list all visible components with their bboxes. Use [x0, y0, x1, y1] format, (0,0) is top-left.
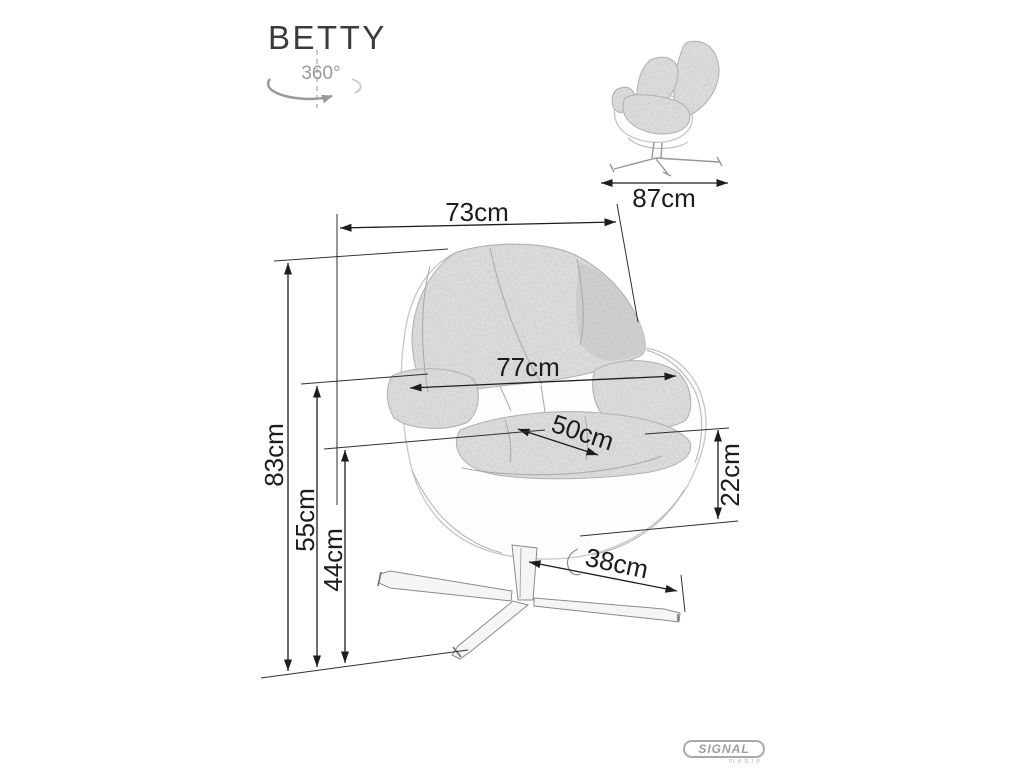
main-chair-drawing	[378, 244, 706, 659]
brand-logo: SIGNAL meble	[683, 740, 765, 765]
depth-label: 87cm	[632, 183, 696, 213]
side-base	[610, 142, 722, 176]
seat-height-label: 44cm	[318, 528, 348, 592]
product-dimension-sheet: BETTY 360°	[0, 0, 1024, 783]
dimension-depth: 87cm	[601, 183, 728, 213]
rotation-360-icon: 360°	[268, 50, 361, 108]
inner-width-label: 77cm	[496, 352, 560, 382]
rotation-label: 360°	[301, 63, 340, 84]
ext-base-leg-right	[681, 575, 685, 612]
dimension-diagram: 360°	[0, 0, 1024, 783]
base-leg-label: 38cm	[583, 542, 651, 585]
side-upholstery	[612, 41, 719, 134]
side-view-drawing	[610, 41, 722, 176]
ground-line	[261, 650, 468, 678]
overall-height-label: 83cm	[259, 423, 289, 487]
rotation-arc-back	[352, 79, 361, 93]
armrest-left	[387, 369, 478, 429]
brand-name: SIGNAL	[698, 743, 749, 755]
arm-height-label: 55cm	[290, 488, 320, 552]
base-leg-left	[379, 571, 512, 601]
ext-overall-height-top	[274, 249, 448, 261]
base-leg-right	[534, 598, 680, 622]
overall-width-label: 73cm	[445, 197, 509, 227]
base-stem	[512, 545, 537, 600]
brand-logo-frame: SIGNAL	[683, 740, 765, 758]
brand-subtext: meble	[683, 758, 765, 765]
seat-to-arm-label: 22cm	[715, 443, 745, 507]
